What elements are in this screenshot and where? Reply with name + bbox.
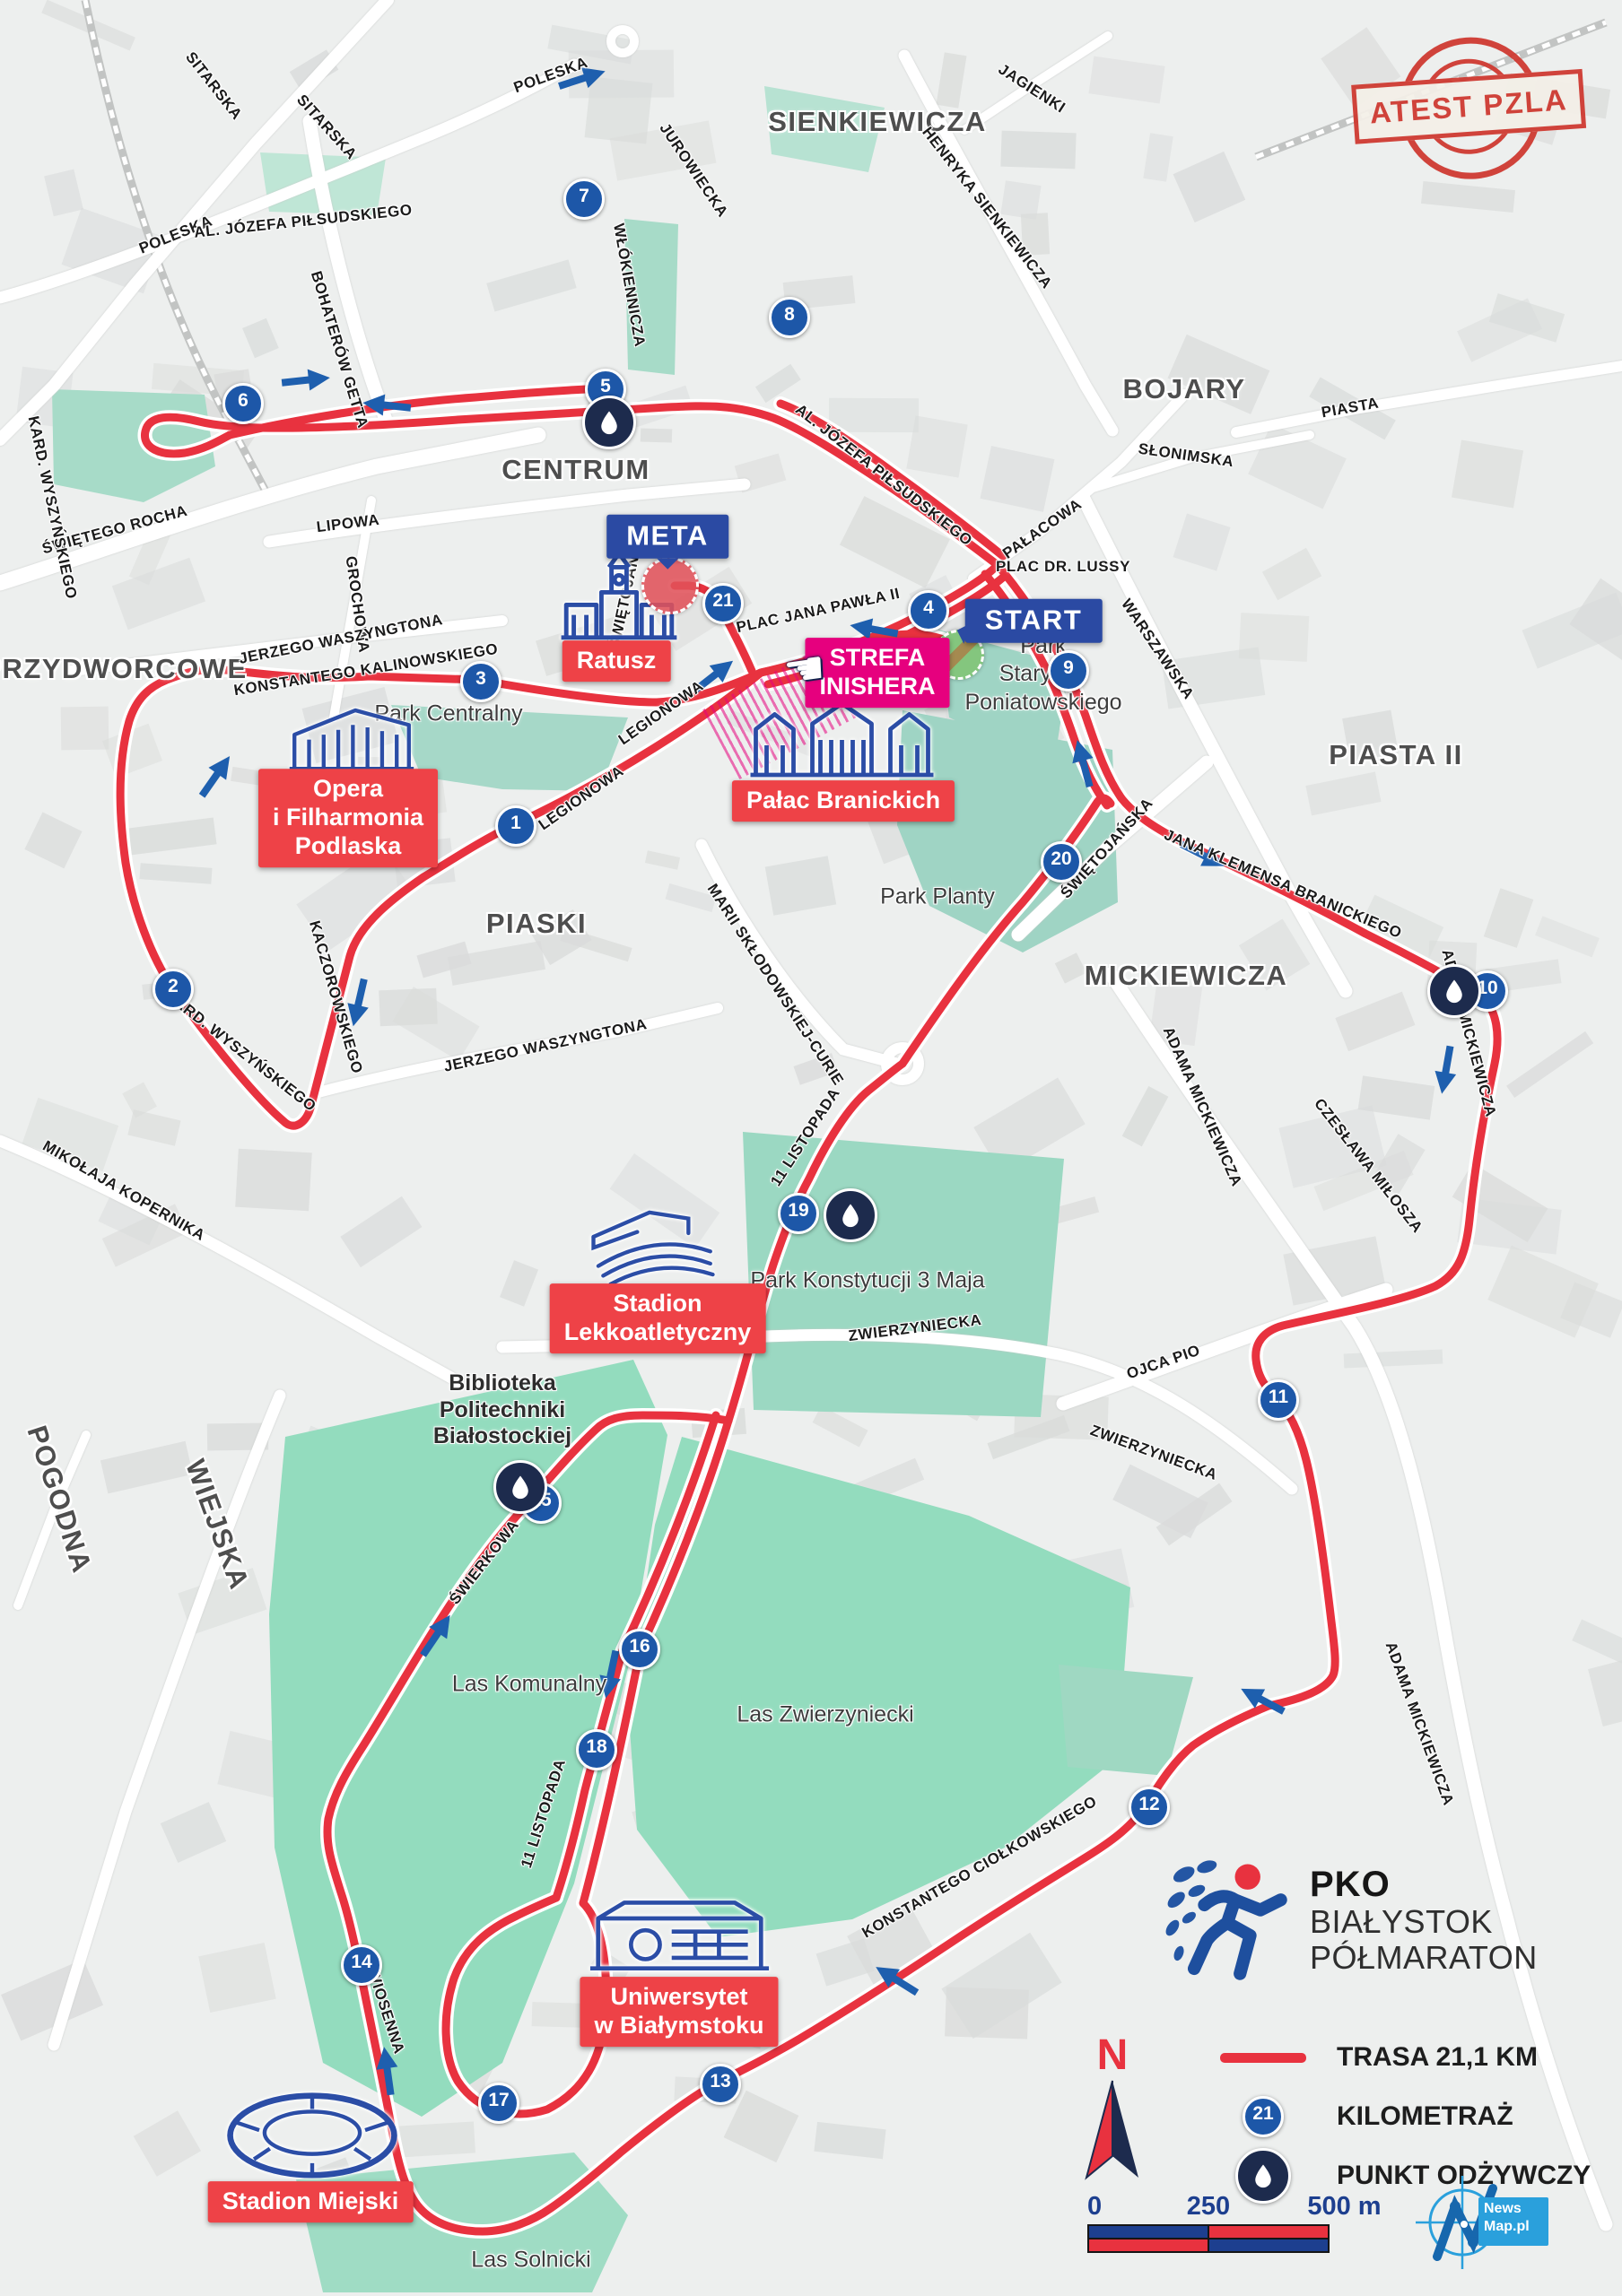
km-marker-1: 1 (495, 805, 536, 847)
newsmap-line1: News (1484, 2200, 1543, 2218)
pointing-hand-icon: ☚ (780, 644, 828, 696)
poi-label-start: START (965, 599, 1103, 643)
district-label-mickiewicza: MICKIEWICZA (1085, 960, 1288, 992)
pko-logo-text: PKO BIAŁYSTOK PÓŁMARATON (1310, 1865, 1538, 1977)
poi-label-ratusz: Ratusz (562, 640, 671, 682)
newsmap-text: News Map.pl (1478, 2197, 1548, 2246)
km-marker-21: 21 (702, 583, 744, 624)
opera-illustration (284, 693, 419, 778)
water-drop-icon (837, 1202, 864, 1229)
poi-label-biblioteka-politechniki: Biblioteka Politechniki Białostockiej (419, 1364, 586, 1457)
km-marker-16: 16 (619, 1629, 660, 1670)
legend-row-route: TRASA 21,1 KM (1213, 2032, 1591, 2083)
poi-label-opera: Opera i Filharmonia Podlaska (258, 769, 438, 867)
legend-km-label: KILOMETRAŻ (1337, 2101, 1513, 2132)
park-label-las-komunalny: Las Komunalny (452, 1670, 606, 1698)
km-marker-12: 12 (1129, 1787, 1170, 1828)
km-marker-9: 9 (1048, 650, 1089, 691)
km-marker-19: 19 (778, 1193, 819, 1234)
direction-arrow-6 (193, 750, 239, 802)
km-marker-13: 13 (700, 2064, 741, 2105)
km-marker-7: 7 (563, 178, 605, 220)
district-label-centrum: CENTRUM (501, 454, 650, 486)
pko-logo-line3: PÓŁMARATON (1310, 1940, 1538, 1976)
scale-bar-graphic (1087, 2224, 1330, 2253)
km-marker-4: 4 (908, 590, 949, 631)
km-marker-18: 18 (576, 1729, 617, 1770)
water-drop-icon (507, 1474, 534, 1500)
district-label-bojary: BOJARY (1122, 373, 1245, 405)
nutrition-point-1 (582, 396, 636, 449)
km-marker-6: 6 (222, 383, 264, 424)
north-label: N (1080, 2034, 1145, 2077)
north-arrow-icon (1081, 2077, 1144, 2183)
park-label-park-stary-im-poniatowskiego: Park Stary im. Poniatowskiego (964, 632, 1121, 717)
park-label-park-planty: Park Planty (880, 883, 995, 910)
km-marker-2: 2 (153, 969, 194, 1010)
km-marker-8: 8 (769, 297, 810, 338)
nutrition-point-3 (493, 1460, 547, 1514)
stadion-miejski-illustration (218, 2080, 406, 2186)
legend-row-km: 21 KILOMETRAŻ (1213, 2092, 1591, 2142)
pko-logo-line1: PKO (1310, 1865, 1538, 1904)
stamp-text: ATEST PZLA (1351, 69, 1586, 144)
scale-label-250: 250 (1187, 2192, 1230, 2222)
district-label-piaski: PIASKI (486, 908, 587, 940)
km-marker-17: 17 (478, 2083, 519, 2124)
stadion-lekkoatletyczny-illustration (586, 1203, 720, 1288)
poi-label-palac-branickich: Pałac Branickich (732, 780, 955, 822)
atest-pzla-stamp: ATEST PZLA (1325, 23, 1608, 187)
uniwersytet-illustration (588, 1879, 772, 1978)
poi-label-stadion-lekkoatletyczny: Stadion Lekkoatletyczny (550, 1283, 766, 1353)
newsmap-line2: Map.pl (1484, 2218, 1543, 2236)
newsmap-logo: News Map.pl (1410, 2170, 1554, 2278)
runner-icon (1159, 1857, 1295, 1984)
legend-route-label: TRASA 21,1 KM (1337, 2042, 1538, 2073)
route-line-swatch (1220, 2053, 1306, 2063)
park-label-las-solnicki: Las Solnicki (471, 2246, 590, 2274)
park-label-park-konstytucji-3-maja: Park Konstytucji 3 Maja (750, 1266, 984, 1294)
scale-label-0: 0 (1087, 2192, 1102, 2222)
district-label-sienkiewicza: SIENKIEWICZA (768, 106, 987, 138)
poi-label-stadion-miejski: Stadion Miejski (208, 2181, 414, 2222)
km-marker-3: 3 (460, 661, 501, 702)
km-marker-20: 20 (1041, 841, 1082, 883)
nutrition-point-4 (824, 1188, 877, 1242)
water-drop-icon (1441, 978, 1468, 1004)
scale-label-500: 500 m (1307, 2192, 1381, 2222)
pko-logo: PKO BIAŁYSTOK PÓŁMARATON (1159, 1857, 1538, 1984)
street-label-plac-dr-lussy: PLAC DR. LUSSY (996, 558, 1130, 576)
district-label-piasta-ii: PIASTA II (1329, 739, 1463, 771)
km-marker-14: 14 (341, 1944, 382, 1986)
km-badge-swatch: 21 (1243, 2096, 1284, 2137)
pko-logo-line2: BIAŁYSTOK (1310, 1904, 1538, 1940)
district-label-przydworcowe: PRZYDWORCOWE (0, 653, 248, 685)
map-canvas: ☚ ATEST PZLA PKO BIAŁYSTOK PÓŁMARATON (0, 0, 1622, 2296)
nutrition-point-2 (1427, 964, 1481, 1018)
poi-label-meta: META (606, 515, 728, 559)
park-label-las-zwierzyniecki: Las Zwierzyniecki (737, 1700, 913, 1728)
north-indicator: N (1080, 2034, 1145, 2187)
direction-arrow-1 (281, 367, 331, 394)
poi-label-uniwersytet: Uniwersytet w Białymstoku (580, 1977, 778, 2047)
scale-bar: 0 250 500 m (1087, 2192, 1330, 2253)
water-drop-icon (596, 409, 623, 436)
km-marker-11: 11 (1258, 1379, 1299, 1421)
direction-arrow-10 (1431, 1044, 1461, 1095)
poi-label-strefa-inishera: STREFA INISHERA (805, 638, 949, 708)
